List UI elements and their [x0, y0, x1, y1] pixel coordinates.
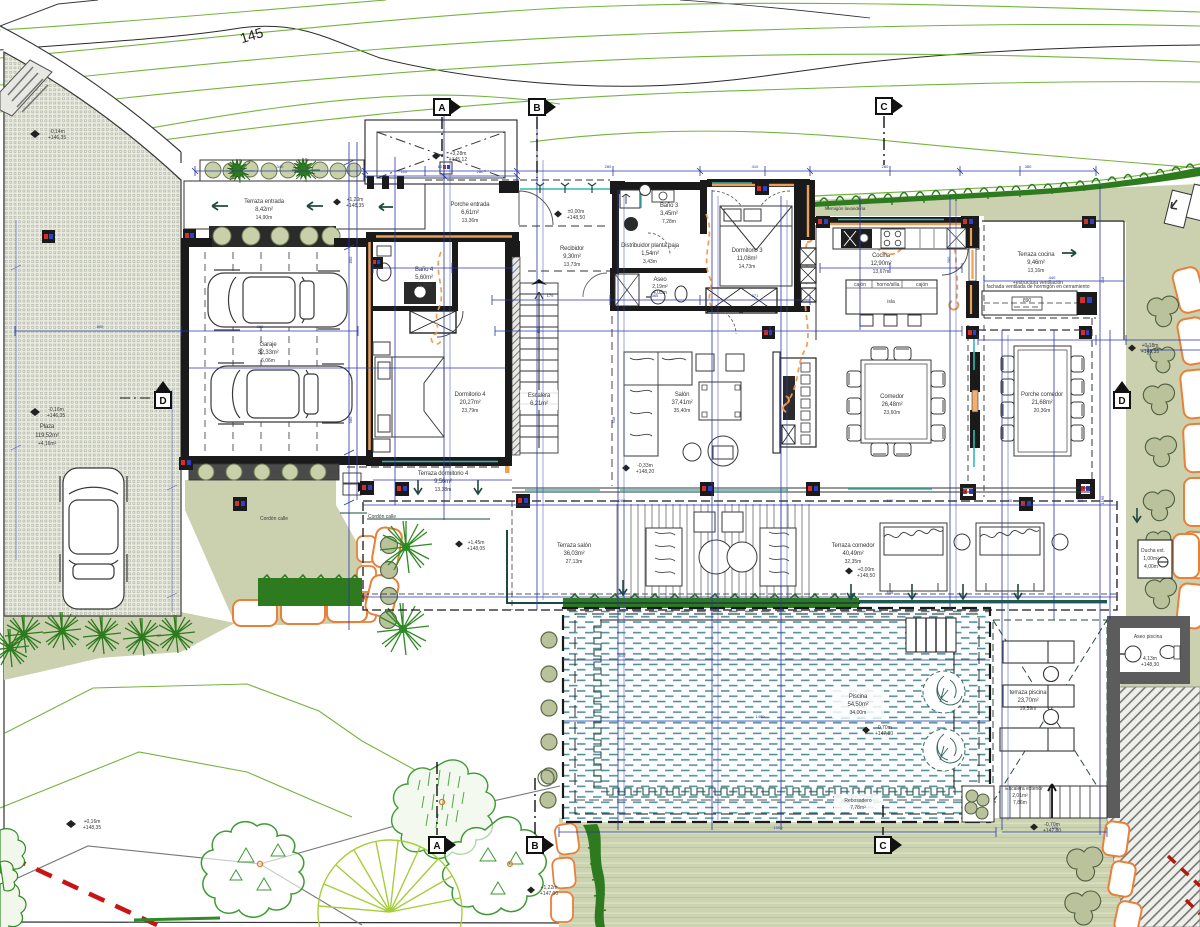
svg-text:1195: 1195: [1100, 495, 1105, 504]
svg-text:D: D: [1118, 396, 1125, 407]
svg-text:508: 508: [611, 416, 616, 423]
svg-text:34,00m: 34,00m: [850, 710, 867, 716]
svg-text:23,79m: 23,79m: [462, 408, 479, 414]
svg-text:Cocina: Cocina: [872, 253, 891, 259]
svg-text:380: 380: [1025, 164, 1032, 169]
svg-text:688: 688: [887, 498, 894, 503]
svg-text:800: 800: [97, 324, 104, 329]
svg-text:4,00m: 4,00m: [1144, 564, 1158, 570]
svg-text:36,03m²: 36,03m²: [564, 551, 585, 557]
svg-text:23,70m²: 23,70m²: [1018, 698, 1039, 704]
svg-text:1,00m²: 1,00m²: [1143, 556, 1159, 562]
svg-text:cajón: cajón: [916, 282, 928, 288]
svg-text:7,86m: 7,86m: [1013, 800, 1027, 806]
svg-text:+148,50: +148,50: [567, 215, 585, 221]
svg-text:7,28m: 7,28m: [662, 219, 676, 225]
svg-text:6,21m²: 6,21m²: [530, 401, 548, 407]
svg-text:13,16m: 13,16m: [1028, 268, 1045, 274]
svg-text:27,13m: 27,13m: [566, 559, 583, 565]
svg-text:Ducha ext.: Ducha ext.: [1141, 548, 1165, 554]
svg-text:D: D: [159, 396, 166, 407]
svg-text:+148,35: +148,35: [83, 825, 101, 831]
svg-text:terraza piscina: terraza piscina: [1010, 690, 1048, 696]
svg-text:Salón: Salón: [675, 392, 690, 398]
svg-text:100: 100: [1052, 825, 1059, 830]
svg-text:300: 300: [946, 256, 951, 263]
svg-text:Cordón calle: Cordón calle: [260, 516, 288, 522]
svg-text:+148,30: +148,30: [1141, 662, 1159, 668]
svg-text:54,50m²: 54,50m²: [848, 702, 869, 708]
svg-text:35,40m: 35,40m: [674, 408, 691, 414]
svg-text:800: 800: [348, 256, 353, 263]
svg-text:C: C: [880, 102, 887, 113]
svg-text:+146,35: +146,35: [47, 413, 65, 419]
svg-text:119,52m²: 119,52m²: [35, 433, 59, 439]
svg-text:C: C: [879, 841, 886, 852]
svg-text:688: 688: [887, 590, 894, 595]
svg-text:Garaje: Garaje: [259, 342, 277, 348]
svg-text:13,73m: 13,73m: [564, 262, 581, 268]
svg-text:179: 179: [547, 293, 554, 298]
svg-text:365: 365: [652, 293, 659, 298]
svg-text:440: 440: [1049, 275, 1056, 280]
svg-text:1480: 1480: [756, 714, 766, 719]
svg-text:Piscina: Piscina: [849, 694, 868, 700]
svg-text:Terraza salón: Terraza salón: [557, 543, 591, 549]
svg-text:14,90m: 14,90m: [256, 215, 273, 221]
svg-text:5,60m²: 5,60m²: [415, 275, 433, 281]
svg-text:Aseo: Aseo: [653, 277, 667, 283]
svg-text:1,54m²: 1,54m²: [641, 251, 659, 257]
svg-text:Aseo piscina: Aseo piscina: [1134, 634, 1163, 640]
svg-text:+147,80: +147,80: [875, 731, 893, 737]
svg-text:Terraza dormitorio 4: Terraza dormitorio 4: [418, 471, 469, 477]
svg-text:+148,05: +148,05: [467, 546, 485, 552]
svg-text:A: A: [433, 841, 440, 852]
svg-text:Porche entrada: Porche entrada: [451, 202, 491, 208]
svg-text:+147,00: +147,00: [540, 891, 558, 897]
svg-text:Dormitorio 4: Dormitorio 4: [455, 392, 487, 398]
svg-text:21,68m²: 21,68m²: [1032, 400, 1053, 406]
svg-text:Distribuidor planta baja: Distribuidor planta baja: [621, 243, 680, 249]
svg-text:13,38m: 13,38m: [435, 487, 452, 493]
svg-text:A: A: [438, 103, 445, 114]
svg-text:14,73m: 14,73m: [739, 264, 756, 270]
svg-text:Cordón calle: Cordón calle: [368, 514, 396, 520]
svg-text:Rebosadero: Rebosadero: [844, 798, 871, 804]
svg-text:13,67m: 13,67m: [873, 269, 890, 275]
svg-text:32,33m²: 32,33m²: [258, 350, 279, 356]
svg-text:Terraza cocina: Terraza cocina: [1018, 252, 1056, 258]
svg-text:B: B: [531, 841, 538, 852]
svg-text:B: B: [533, 103, 540, 114]
svg-text:400: 400: [619, 590, 626, 595]
svg-text:19,59m: 19,59m: [1020, 706, 1037, 712]
svg-text:+4,16m²: +4,16m²: [38, 441, 57, 447]
svg-text:23,60m: 23,60m: [884, 410, 901, 416]
svg-text:+146,35: +146,35: [48, 135, 66, 141]
svg-text:9,46m²: 9,46m²: [1027, 260, 1045, 266]
svg-text:340: 340: [277, 164, 284, 169]
svg-text:37,41m²: 37,41m²: [672, 400, 693, 406]
svg-text:3,43m: 3,43m: [643, 259, 657, 265]
svg-text:3,45m²: 3,45m²: [660, 211, 678, 217]
svg-text:horno/silla: horno/silla: [877, 282, 900, 288]
svg-text:60: 60: [438, 164, 443, 169]
svg-text:Terraza comedor: Terraza comedor: [832, 543, 875, 549]
svg-text:20,27m²: 20,27m²: [460, 400, 481, 406]
svg-text:Terraza entrada: Terraza entrada: [244, 199, 285, 205]
svg-text:9,30m²: 9,30m²: [563, 254, 581, 260]
svg-text:Porche comedor: Porche comedor: [1021, 392, 1063, 398]
svg-text:1000: 1000: [774, 825, 784, 830]
svg-text:890: 890: [1023, 298, 1032, 304]
svg-text:40: 40: [1008, 498, 1013, 503]
svg-text:13,36m: 13,36m: [462, 218, 479, 224]
svg-text:7,78m²: 7,78m²: [850, 805, 866, 811]
svg-text:280: 280: [619, 498, 626, 503]
svg-text:11,08m²: 11,08m²: [737, 256, 758, 262]
svg-text:218: 218: [1100, 276, 1105, 283]
svg-text:+148,50: +148,50: [857, 573, 875, 579]
svg-text:871: 871: [752, 293, 759, 298]
svg-text:2,01m²: 2,01m²: [1012, 793, 1028, 799]
svg-text:6,61m²: 6,61m²: [461, 210, 479, 216]
svg-text:810: 810: [619, 653, 626, 658]
svg-text:Escalera: Escalera: [528, 393, 551, 399]
svg-text:12,90m²: 12,90m²: [871, 261, 892, 267]
svg-text:280: 280: [882, 164, 889, 169]
svg-text:390: 390: [1077, 498, 1084, 503]
svg-text:Recibidor: Recibidor: [560, 246, 584, 252]
svg-text:40,49m²: 40,49m²: [843, 551, 864, 557]
svg-text:8,42m²: 8,42m²: [255, 207, 273, 213]
svg-text:Plaza: Plaza: [40, 424, 55, 430]
svg-text:26,48m²: 26,48m²: [882, 402, 903, 408]
svg-text:20,36m: 20,36m: [1034, 408, 1051, 414]
svg-text:280: 280: [477, 169, 484, 174]
svg-text:Comedor: Comedor: [880, 394, 904, 400]
svg-text:980: 980: [348, 416, 353, 423]
svg-text:860: 860: [257, 324, 264, 329]
svg-text:110: 110: [401, 169, 408, 174]
svg-text:6,06m: 6,06m: [261, 358, 275, 364]
svg-text:15,30m: 15,30m: [416, 283, 433, 289]
svg-text:520: 520: [536, 326, 541, 333]
svg-text:280: 280: [605, 164, 612, 169]
svg-text:Escalera exterior: Escalera exterior: [1005, 786, 1043, 792]
svg-text:Dormitorio 3: Dormitorio 3: [732, 248, 764, 254]
svg-text:+148,20: +148,20: [636, 469, 654, 475]
svg-text:+148,35: +148,35: [1141, 349, 1159, 355]
svg-text:410: 410: [752, 164, 759, 169]
svg-text:32,35m: 32,35m: [845, 559, 862, 565]
svg-text:isla: isla: [887, 299, 895, 305]
svg-text:Baño 3: Baño 3: [660, 203, 679, 209]
